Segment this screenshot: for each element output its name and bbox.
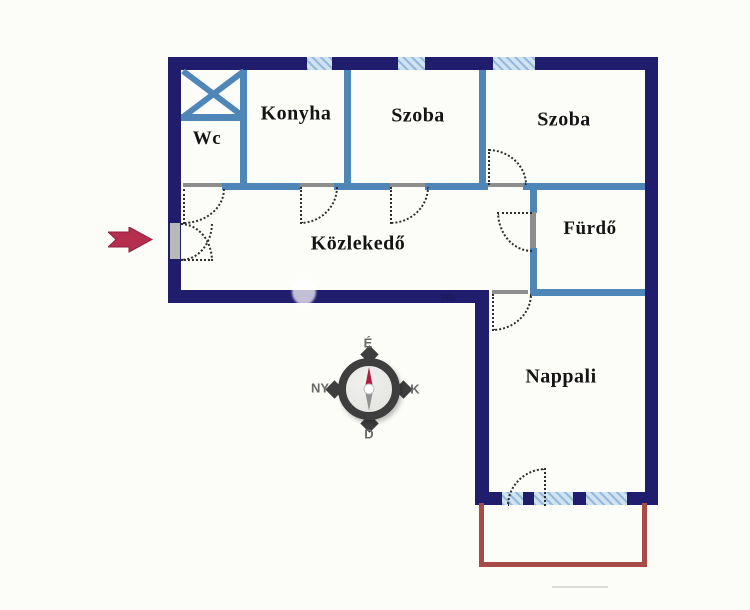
compass-label-south: D bbox=[364, 427, 373, 442]
room-label-szoba2: Szoba bbox=[537, 109, 591, 132]
room-label-kozlekedo: Közlekedő bbox=[311, 233, 406, 256]
room-label-nappali: Nappali bbox=[525, 366, 596, 389]
terrace-outline bbox=[479, 503, 647, 567]
compass-needle-icon bbox=[324, 344, 414, 434]
compass-label-east: K bbox=[410, 382, 419, 397]
door-arc-entrance-base bbox=[181, 257, 213, 261]
compass-label-north: É bbox=[364, 336, 373, 351]
wall-highlight-blob bbox=[292, 279, 316, 305]
room-label-furdo: Fürdő bbox=[563, 218, 616, 240]
room-label-wc: Wc bbox=[193, 128, 221, 150]
floor-plan: Wc Konyha Szoba Szoba Fürdő Közlekedő Na… bbox=[0, 0, 750, 610]
compass-label-west: NY bbox=[311, 381, 329, 396]
room-label-konyha: Konyha bbox=[261, 103, 332, 126]
door-lintel-wc bbox=[183, 183, 222, 187]
compass-rose: É K D NY bbox=[324, 344, 414, 434]
room-label-szoba1: Szoba bbox=[391, 105, 445, 128]
entrance-door-leaf bbox=[170, 223, 180, 259]
faint-watermark-line bbox=[552, 586, 608, 588]
entrance-arrow-icon bbox=[108, 227, 154, 253]
watermark-mark: W® bbox=[441, 292, 454, 302]
